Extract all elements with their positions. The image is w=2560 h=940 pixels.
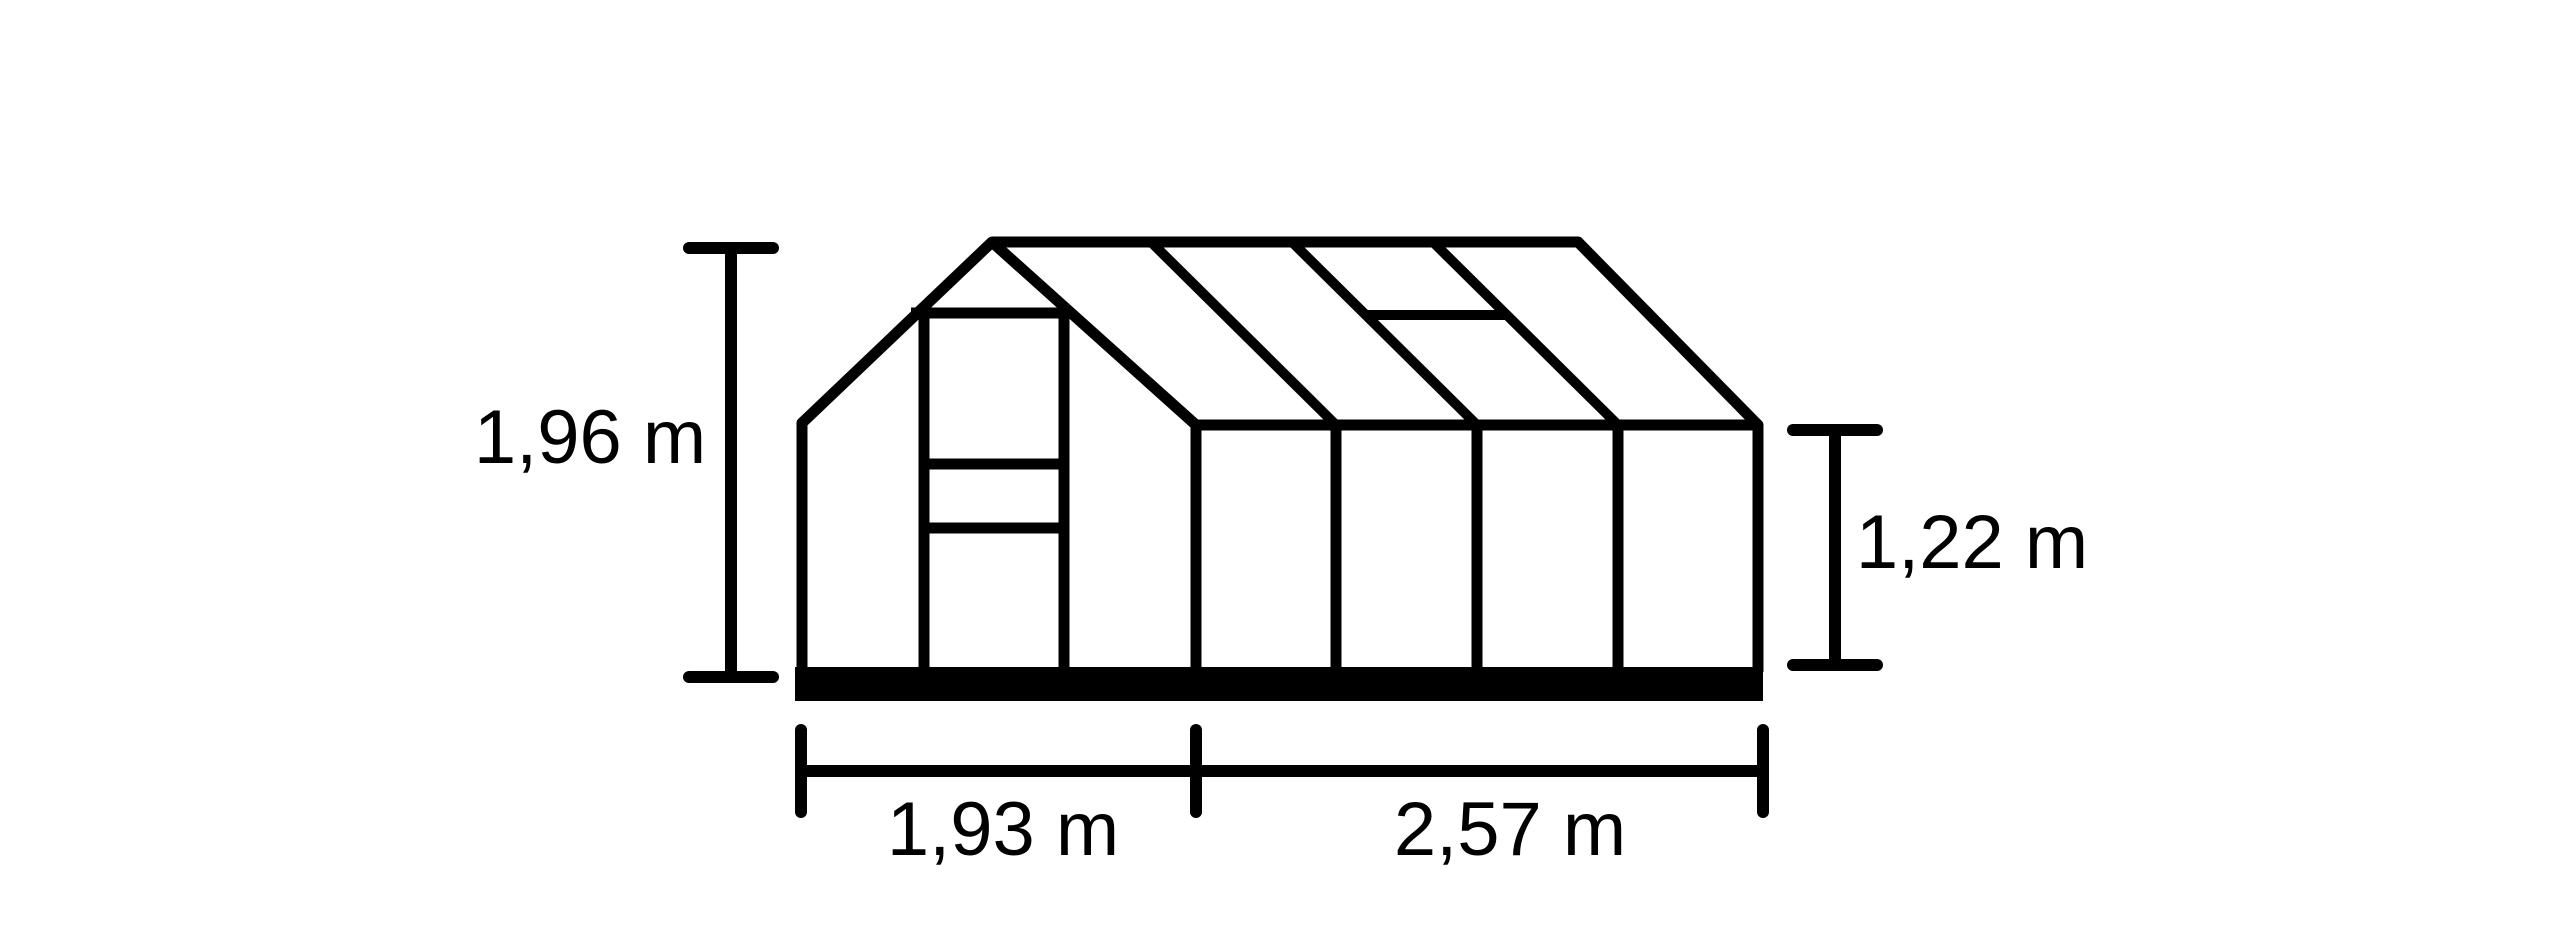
- side-height-dimension: 1,22 m: [1793, 430, 2088, 665]
- gable-width-label: 1,93 m: [887, 787, 1119, 872]
- diagram-svg: 1,96 m 1,22 m 1,93 m 2,57 m: [0, 0, 2560, 940]
- roof-rafter-3: [1435, 244, 1618, 425]
- roof-rafter-2: [1294, 244, 1477, 425]
- side-height-label: 1,22 m: [1856, 500, 2088, 585]
- width-dimension: 1,93 m 2,57 m: [801, 730, 1763, 872]
- door: [911, 313, 1069, 670]
- foundation-base-bar: [795, 667, 1763, 701]
- total-height-dimension: 1,96 m: [474, 248, 773, 677]
- roof-rafter-1: [1153, 244, 1336, 425]
- greenhouse-dimension-diagram: 1,96 m 1,22 m 1,93 m 2,57 m: [0, 0, 2560, 940]
- total-height-label: 1,96 m: [474, 395, 706, 480]
- gable-right-roof-slope: [992, 242, 1196, 425]
- side-length-label: 2,57 m: [1394, 787, 1626, 872]
- greenhouse-structure: [795, 242, 1763, 701]
